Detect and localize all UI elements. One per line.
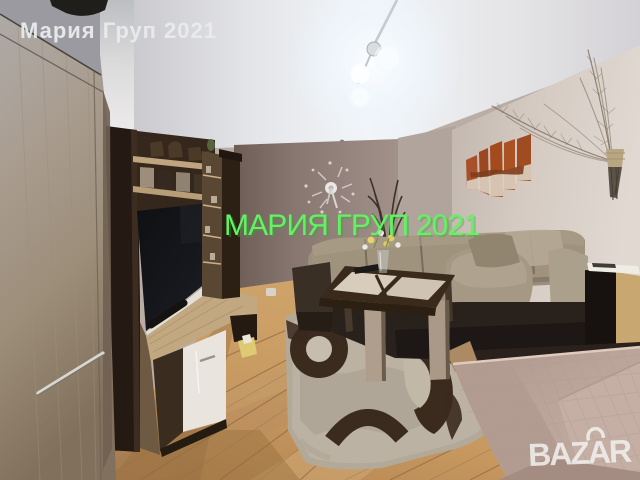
svg-text:МАРИЯ ГРУП 2021: МАРИЯ ГРУП 2021 bbox=[224, 209, 480, 242]
svg-text:BAZAR: BAZAR bbox=[527, 433, 632, 473]
svg-text:Мария Груп 2021: Мария Груп 2021 bbox=[20, 18, 216, 43]
